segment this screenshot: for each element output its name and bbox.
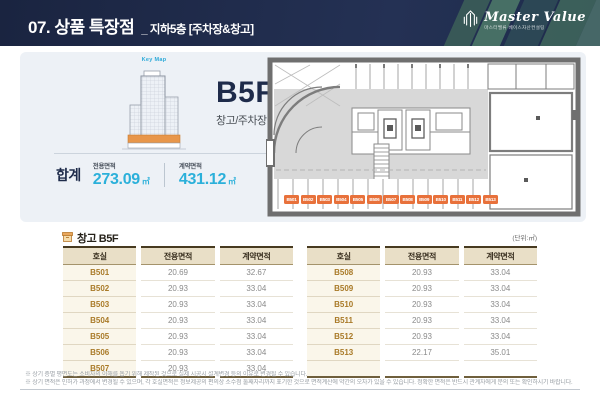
contract-area-unit: ㎡ — [228, 176, 236, 187]
contract-area-cell: 33.04 — [220, 345, 293, 361]
room-cell: B506 — [63, 345, 136, 361]
unit-badge: B511 — [450, 195, 465, 204]
contract-area-cell: 32.67 — [220, 265, 293, 281]
exclusive-area-cell: 20.93 — [141, 297, 214, 313]
totals-separator — [164, 163, 165, 187]
contract-area-cell: 33.04 — [464, 281, 537, 297]
logo-emblem-icon — [462, 7, 479, 34]
area-totals: 합계 전용면적 273.09 ㎡ 계약면적 431.12 ㎡ — [56, 160, 236, 188]
exclusive-area-cell: 20.69 — [141, 265, 214, 281]
room-cell: B503 — [63, 297, 136, 313]
table-row: B513 22.17 35.01 — [307, 345, 537, 361]
room-cell: B511 — [307, 313, 380, 329]
contract-area-cell: 33.04 — [220, 329, 293, 345]
table-row: B508 20.93 33.04 — [307, 265, 537, 281]
footnotes: ※ 상기 층별 평면도는 소비자의 이해를 돕기 위해 제작된 것으로 실제 시… — [25, 371, 577, 387]
col-header-room: 호실 — [307, 246, 380, 265]
contract-area-total: 계약면적 431.12 ㎡ — [179, 160, 236, 188]
area-table-right: 호실 전용면적 계약면적 B508 20.93 33.04 B509 20.93… — [302, 246, 542, 378]
contract-area-cell: 33.04 — [464, 329, 537, 345]
contract-area-value: 431.12 — [179, 172, 226, 188]
floor-plan — [266, 56, 582, 218]
exclusive-area-value: 273.09 — [93, 172, 140, 188]
table-row: B505 20.93 33.04 — [63, 329, 293, 345]
unit-badge: B513 — [483, 195, 498, 204]
table-row: B502 20.93 33.04 — [63, 281, 293, 297]
logo-name: Master Value — [484, 11, 586, 24]
table-row: B503 20.93 33.04 — [63, 297, 293, 313]
room-cell: B504 — [63, 313, 136, 329]
contract-area-cell: 33.04 — [464, 297, 537, 313]
summary-divider — [54, 153, 272, 154]
exclusive-area-cell: 20.93 — [385, 297, 458, 313]
col-header-room: 호실 — [63, 246, 136, 265]
unit-badge: B508 — [400, 195, 415, 204]
exclusive-area-cell: 20.93 — [385, 329, 458, 345]
unit-badge: B504 — [334, 195, 349, 204]
unit-badge: B505 — [350, 195, 365, 204]
unit-note: (단위:㎡) — [512, 232, 537, 242]
page-title-sub: _ 지하5층 [주차장&창고] — [141, 21, 253, 37]
table-row: B504 20.93 33.04 — [63, 313, 293, 329]
room-cell: B501 — [63, 265, 136, 281]
col-header-contract: 계약면적 — [464, 246, 537, 265]
area-table-left: 호실 전용면적 계약면적 B501 20.69 32.67 B502 20.93… — [58, 246, 298, 378]
room-cell: B502 — [63, 281, 136, 297]
room-cell: B512 — [307, 329, 380, 345]
unit-badge: B506 — [367, 195, 382, 204]
table-section-label: 창고 B5F — [77, 230, 118, 246]
table-row: B501 20.69 32.67 — [63, 265, 293, 281]
col-header-exclusive: 전용면적 — [385, 246, 458, 265]
summary-panel: Key Map B5F 창고/주차장 합계 — [20, 52, 586, 222]
exclusive-area-cell: 22.17 — [385, 345, 458, 361]
header-bar: 07. 상품 특장점 _ 지하5층 [주차장&창고] Master Value … — [0, 0, 600, 46]
page-title-main: 07. 상품 특장점 — [28, 13, 134, 38]
table-section-title: 창고 B5F — [62, 229, 118, 247]
warehouse-box-icon — [62, 229, 73, 247]
footnote-line: ※ 상기 층별 평면도는 소비자의 이해를 돕기 위해 제작된 것으로 실제 시… — [25, 371, 577, 379]
contract-area-cell: 33.04 — [220, 297, 293, 313]
exclusive-area-cell: 20.93 — [141, 313, 214, 329]
room-cell: B508 — [307, 265, 380, 281]
page-title: 07. 상품 특장점 _ 지하5층 [주차장&창고] — [28, 0, 254, 46]
area-tables: 호실 전용면적 계약면적 B501 20.69 32.67 B502 20.93… — [58, 246, 543, 378]
unit-badge: B512 — [466, 195, 481, 204]
key-map: Key Map — [112, 57, 196, 162]
exclusive-area-cell: 20.93 — [385, 281, 458, 297]
room-cell: B509 — [307, 281, 380, 297]
bottom-rule — [20, 389, 580, 390]
exclusive-area-cell: 20.93 — [141, 329, 214, 345]
contract-area-cell: 33.04 — [220, 313, 293, 329]
exclusive-area-cell: 20.93 — [141, 281, 214, 297]
unit-badge: B509 — [417, 195, 432, 204]
contract-area-cell: 33.04 — [464, 265, 537, 281]
unit-badge: B503 — [317, 195, 332, 204]
table-row: B509 20.93 33.04 — [307, 281, 537, 297]
table-row: B512 20.93 33.04 — [307, 329, 537, 345]
brand-logo: Master Value 마스터밸류 베이스자산컨설팅 — [462, 7, 586, 34]
room-cell: B510 — [307, 297, 380, 313]
table-row: B506 20.93 33.04 — [63, 345, 293, 361]
contract-area-cell: 33.04 — [220, 281, 293, 297]
contract-area-cell: 35.01 — [464, 345, 537, 361]
logo-subtext: 마스터밸류 베이스자산컨설팅 — [484, 26, 586, 31]
col-header-contract: 계약면적 — [220, 246, 293, 265]
total-label: 합계 — [56, 165, 81, 188]
table-row: B510 20.93 33.04 — [307, 297, 537, 313]
footnote-line: ※ 상기 면적은 인허가 과정에서 변경될 수 있으며, 각 호실면적은 정보제… — [25, 379, 577, 387]
exclusive-area-cell: 20.93 — [385, 313, 458, 329]
table-row: B511 20.93 33.04 — [307, 313, 537, 329]
unit-badge: B501 — [284, 195, 299, 204]
unit-badge: B502 — [301, 195, 316, 204]
room-cell: B513 — [307, 345, 380, 361]
unit-badge: B507 — [383, 195, 398, 204]
room-cell: B505 — [63, 329, 136, 345]
exclusive-area-total: 전용면적 273.09 ㎡ — [93, 160, 150, 188]
contract-area-cell: 33.04 — [464, 313, 537, 329]
unit-badge: B510 — [433, 195, 448, 204]
col-header-exclusive: 전용면적 — [141, 246, 214, 265]
exclusive-area-unit: ㎡ — [142, 176, 150, 187]
unit-badge-row: B501 B502 B503 B504 B505 B506 B507 B508 … — [284, 195, 498, 204]
exclusive-area-cell: 20.93 — [385, 265, 458, 281]
exclusive-area-cell: 20.93 — [141, 345, 214, 361]
